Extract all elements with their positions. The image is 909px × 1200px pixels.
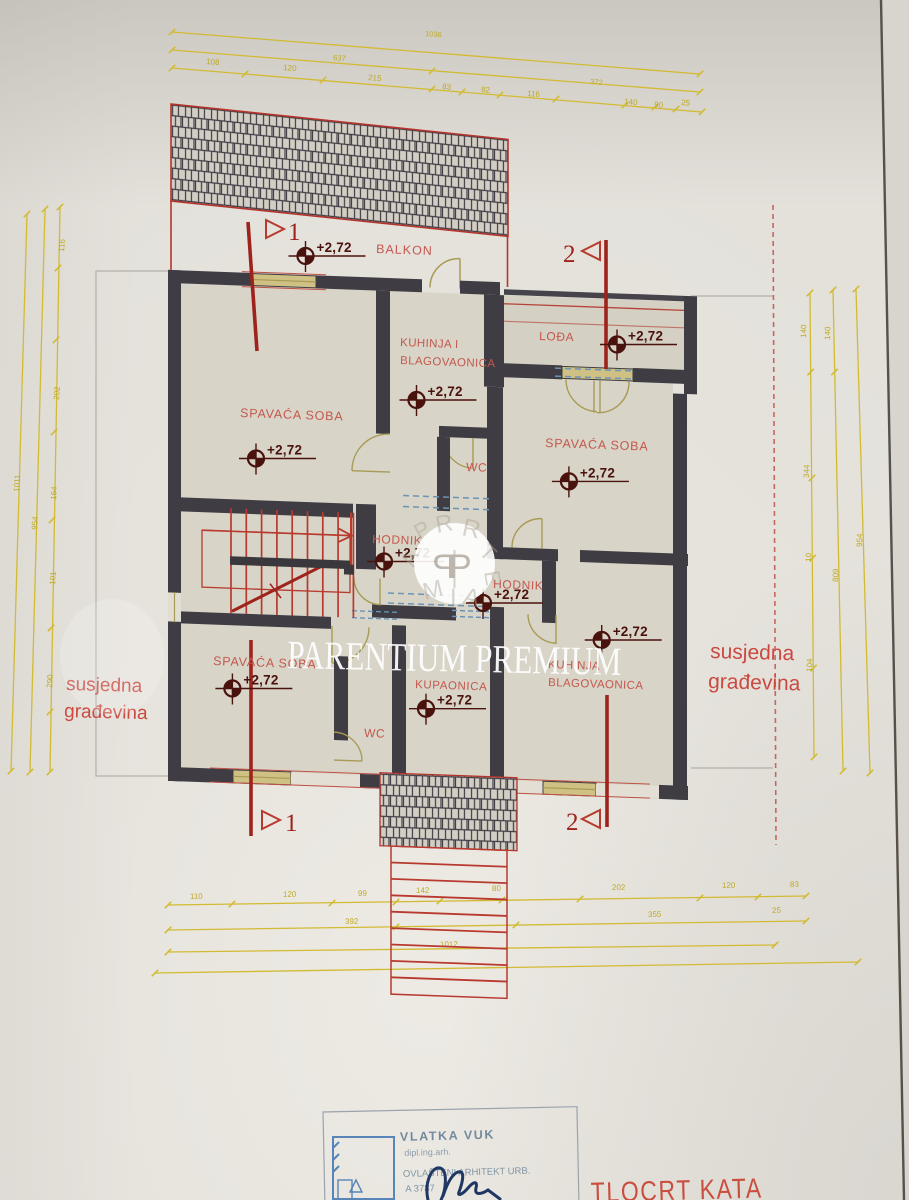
- svg-text:116: 116: [57, 238, 67, 252]
- svg-text:PARENTIUM PREMIUM: PARENTIUM PREMIUM: [287, 632, 622, 684]
- svg-text:1011: 1011: [12, 474, 22, 492]
- svg-text:954: 954: [30, 516, 40, 530]
- svg-text:+2,72: +2,72: [613, 624, 648, 639]
- svg-text:1: 1: [285, 810, 298, 837]
- svg-text:202: 202: [52, 386, 62, 400]
- svg-text:140: 140: [823, 326, 832, 340]
- svg-text:+2,72: +2,72: [243, 673, 278, 688]
- svg-text:10: 10: [804, 552, 813, 562]
- svg-text:KUPAONICA: KUPAONICA: [415, 679, 488, 694]
- svg-text:290: 290: [45, 674, 55, 688]
- svg-text:+2,72: +2,72: [317, 240, 352, 255]
- svg-text:142: 142: [416, 886, 430, 895]
- svg-text:2: 2: [566, 809, 579, 836]
- svg-text:+2,72: +2,72: [580, 465, 615, 480]
- svg-text:25: 25: [681, 98, 691, 108]
- svg-text:140: 140: [799, 324, 808, 338]
- svg-text:215: 215: [368, 73, 383, 83]
- svg-text:120: 120: [283, 63, 298, 73]
- svg-text:140: 140: [624, 97, 639, 107]
- svg-text:83: 83: [442, 82, 452, 92]
- svg-text:2: 2: [563, 241, 576, 268]
- svg-text:+2,72: +2,72: [267, 443, 302, 458]
- svg-text:90: 90: [654, 100, 664, 110]
- svg-text:1: 1: [288, 219, 301, 246]
- svg-text:110: 110: [190, 892, 203, 901]
- svg-text:120: 120: [722, 881, 736, 890]
- svg-text:BALKON: BALKON: [376, 242, 433, 258]
- svg-text:954: 954: [855, 533, 864, 547]
- svg-text:99: 99: [358, 889, 368, 898]
- svg-text:637: 637: [333, 53, 346, 63]
- svg-text:164: 164: [49, 486, 59, 500]
- svg-text:dipl.ing.arh.: dipl.ing.arh.: [404, 1147, 451, 1158]
- svg-text:108: 108: [206, 57, 221, 67]
- svg-text:I: I: [450, 584, 457, 611]
- svg-text:LOĐA: LOĐA: [539, 329, 575, 344]
- svg-text:građevina: građevina: [708, 670, 801, 695]
- svg-text:101: 101: [48, 571, 58, 585]
- svg-text:VLATKA VUK: VLATKA VUK: [400, 1128, 496, 1144]
- svg-text:202: 202: [612, 883, 626, 892]
- svg-text:80: 80: [492, 884, 502, 893]
- svg-text:355: 355: [648, 910, 662, 919]
- svg-text:+2,72: +2,72: [628, 329, 663, 344]
- svg-text:TLOCRT KATA: TLOCRT KATA: [590, 1173, 763, 1200]
- svg-text:susjedna: susjedna: [710, 640, 795, 665]
- svg-text:392: 392: [345, 917, 359, 926]
- svg-text:WC: WC: [466, 460, 488, 475]
- svg-text:A 3787: A 3787: [405, 1183, 435, 1195]
- svg-text:25: 25: [772, 906, 782, 915]
- svg-text:+2,72: +2,72: [428, 384, 463, 399]
- svg-text:120: 120: [283, 890, 297, 899]
- svg-text:WC: WC: [364, 726, 386, 741]
- svg-text:83: 83: [790, 880, 800, 889]
- svg-text:809: 809: [831, 568, 840, 582]
- svg-text:1036: 1036: [425, 29, 442, 39]
- svg-text:344: 344: [802, 464, 811, 478]
- svg-text:104: 104: [805, 658, 814, 672]
- svg-text:116: 116: [527, 89, 541, 99]
- svg-text:+2,72: +2,72: [437, 693, 472, 708]
- svg-text:KUHINJA I: KUHINJA I: [400, 337, 459, 351]
- svg-text:P: P: [449, 548, 472, 586]
- svg-text:82: 82: [481, 85, 491, 95]
- svg-text:372: 372: [590, 77, 603, 87]
